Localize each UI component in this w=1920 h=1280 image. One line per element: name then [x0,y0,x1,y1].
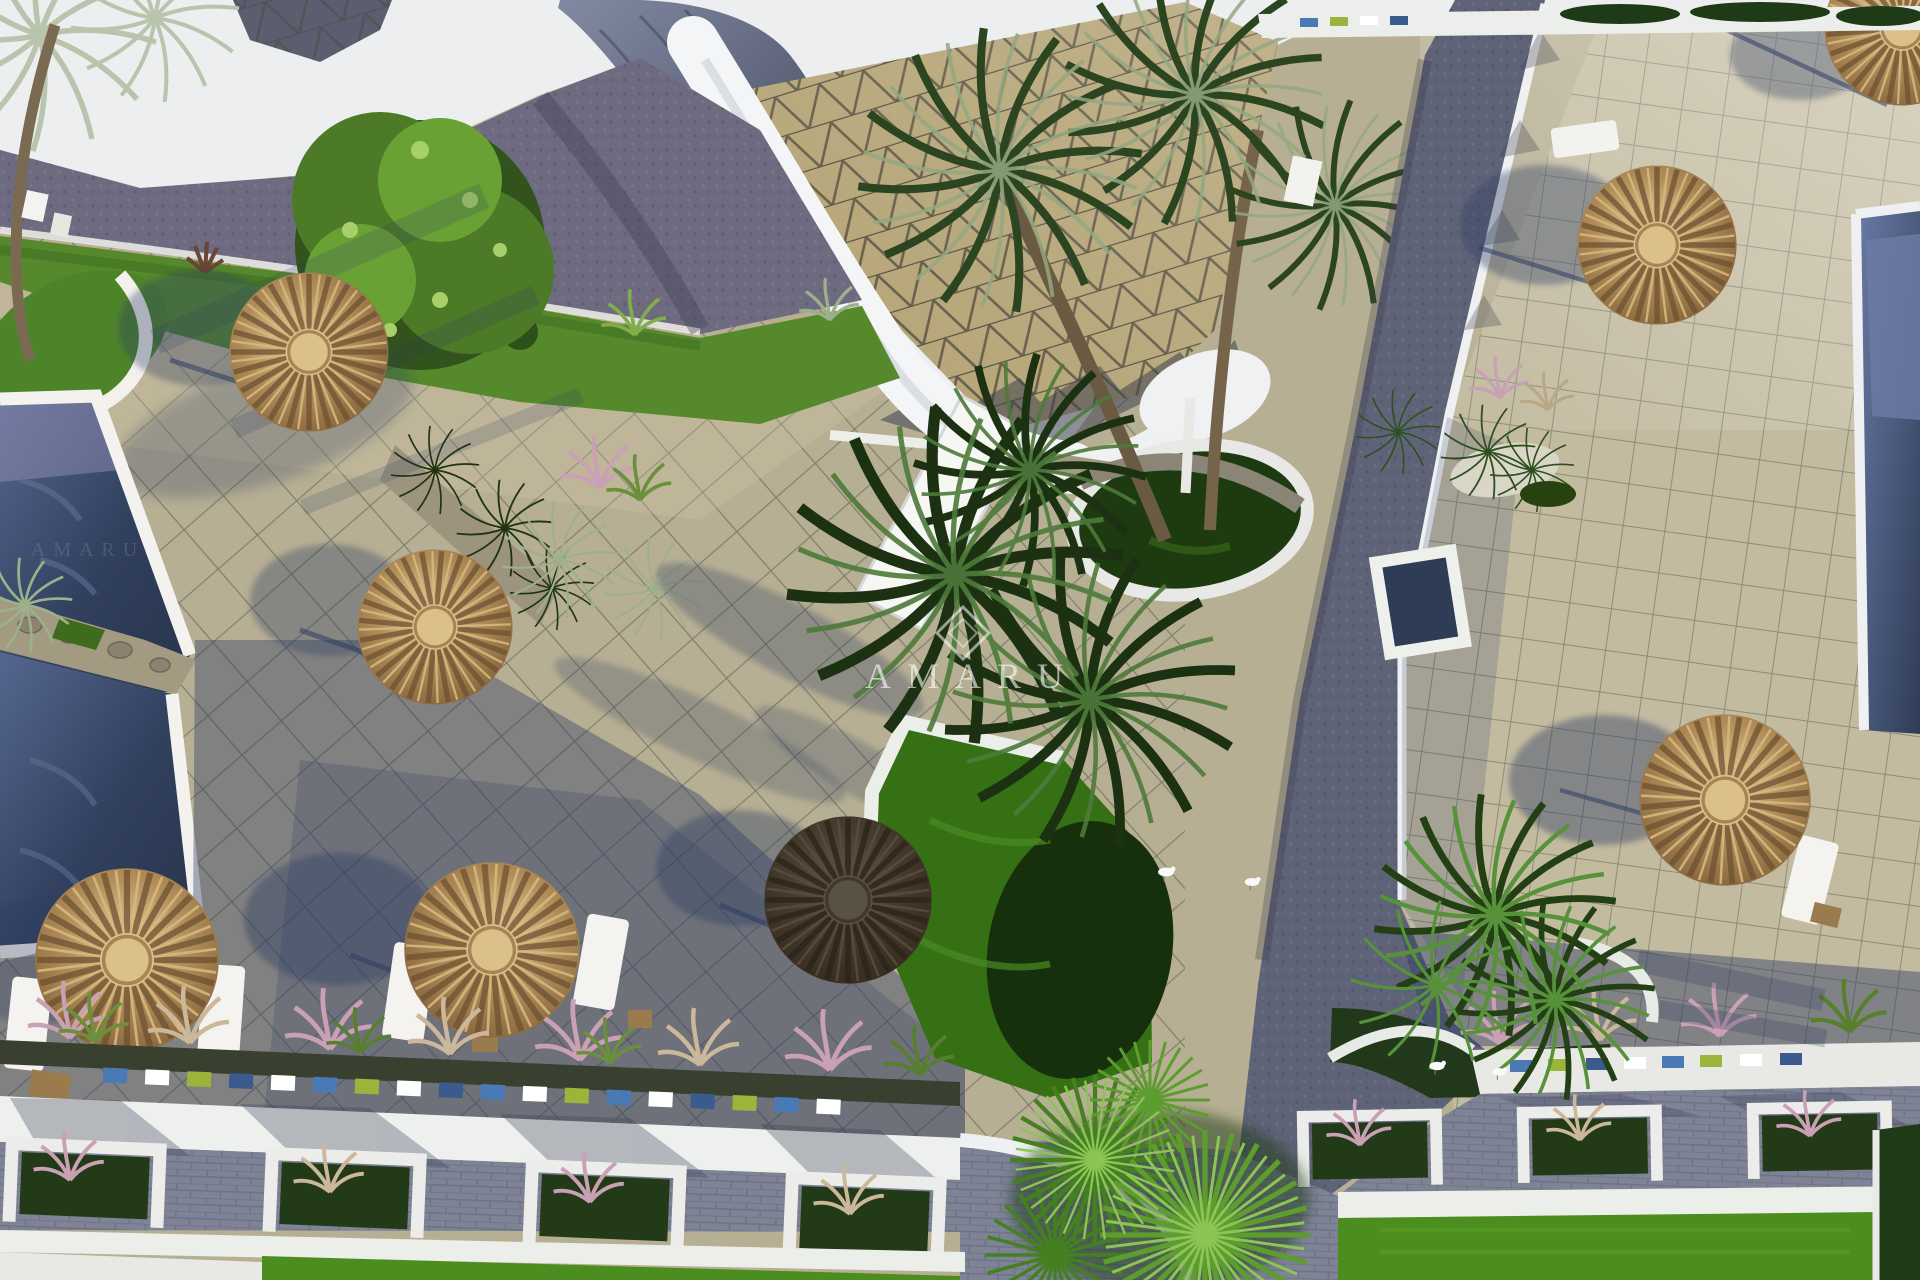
watermark-text: AMARU [865,656,1079,696]
aerial-render-image: AMARU [0,0,1920,1280]
right-lawn [1338,1212,1876,1280]
blue-planter-box [1369,544,1472,660]
corner-hedge-right [1876,1124,1920,1280]
right-pool [1856,206,1920,734]
watermark-faint: AMARU [31,539,145,561]
render-canvas: AMARU [0,0,1920,1280]
